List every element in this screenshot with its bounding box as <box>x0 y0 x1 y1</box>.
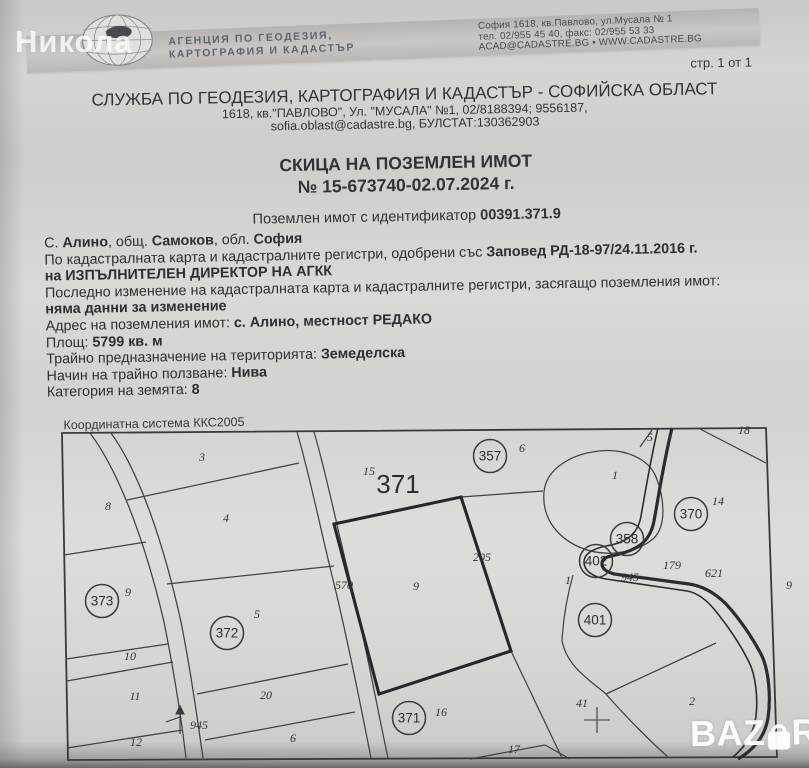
map-region-number: 371 <box>376 469 419 499</box>
map-parcel-label: 6 <box>519 441 525 455</box>
map-parcel-label: 5 <box>647 430 653 444</box>
crosshair-icon <box>584 707 610 733</box>
map-parcel-label: 41 <box>576 696 588 710</box>
map-parcel-label: 17 <box>508 742 521 756</box>
map-parcel-label: 179 <box>663 558 681 572</box>
map-parcel-label: 945 <box>621 570 639 584</box>
map-circled-number: 358 <box>616 532 639 547</box>
map-parcel-label: 2 <box>689 694 695 708</box>
map-parcel-label: 20 <box>260 688 272 702</box>
map-parcel-label: 11 <box>129 689 140 703</box>
map-parcel-label: 18 <box>738 423 750 437</box>
map-parcel-label: 10 <box>124 649 136 663</box>
map-parcel-label: 8 <box>105 499 111 513</box>
map-parcel-label: 15 <box>363 464 375 478</box>
shopping-bag-icon <box>765 719 792 751</box>
map-circled-number: 402 <box>585 554 608 569</box>
map-parcel-label: 16 <box>435 705 447 719</box>
map-parcel-label: 12 <box>130 735 142 749</box>
watermark-text-right: R <box>791 711 809 753</box>
map-parcel-label: 9 <box>125 585 131 599</box>
map-parcel-label: 4 <box>223 511 229 525</box>
listing-site-watermark: BAZ R <box>690 711 809 755</box>
map-parcel-label: 9 <box>786 578 792 592</box>
map-parcel-label: 945 <box>190 718 208 732</box>
map-circled-number: 357 <box>479 449 502 464</box>
map-parcel-label: 205 <box>473 550 491 564</box>
map-parcel-label: 3 <box>198 450 205 464</box>
map-parcel-label: 621 <box>705 566 723 580</box>
map-circled-number: 370 <box>680 507 703 522</box>
map-circled-number: 373 <box>91 594 114 609</box>
map-parcel-label: 1 <box>565 573 571 587</box>
document-photo: АГЕНЦИЯ ПО ГЕОДЕЗИЯ, КАРТОГРАФИЯ И КАДАС… <box>0 0 809 768</box>
cadastral-map: 3849101112520615920557016176511814194517… <box>0 0 809 768</box>
map-parcel-label: 6 <box>290 731 296 745</box>
subject-parcel-outline <box>334 497 511 694</box>
map-parcel-label: 570 <box>335 578 353 592</box>
map-parcel-label: 14 <box>712 494 724 508</box>
photographer-watermark: Никола <box>15 24 133 60</box>
map-circled-number: 371 <box>398 711 421 726</box>
map-circled-number: 372 <box>216 626 239 641</box>
map-circled-number: 401 <box>584 613 607 628</box>
map-parcel-label: 1 <box>612 468 618 482</box>
watermark-text-left: BAZ <box>690 712 766 755</box>
map-parcel-label: 5 <box>254 607 260 621</box>
map-parcel-label: 9 <box>413 579 419 593</box>
